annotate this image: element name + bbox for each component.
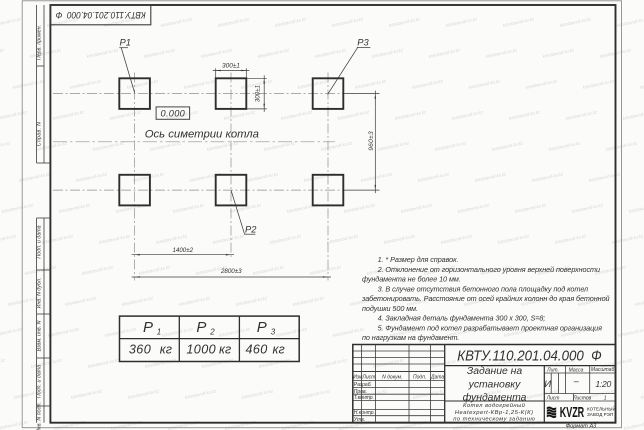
- svg-text:360: 360: [129, 342, 151, 356]
- svg-text:Пров.: Пров.: [354, 389, 367, 395]
- svg-text:Справ. N: Справ. N: [37, 122, 43, 147]
- svg-text:Дата: Дата: [430, 375, 444, 381]
- svg-text:P: P: [143, 319, 153, 336]
- svg-text:Масса: Масса: [569, 367, 584, 373]
- svg-text:Т.контр.: Т.контр.: [354, 395, 374, 401]
- svg-text:1. * Размер для справок.: 1. * Размер для справок.: [378, 255, 459, 264]
- svg-text:Инв. N подл.: Инв. N подл.: [37, 402, 43, 430]
- svg-text:Heatexpert-КВр-1,25-К(К): Heatexpert-КВр-1,25-К(К): [455, 410, 534, 416]
- svg-text:фундамента не более 10 мм.: фундамента не более 10 мм.: [362, 275, 461, 284]
- svg-text:5. Фундамент под котел разраба: 5. Фундамент под котел разрабатывает про…: [378, 323, 603, 332]
- svg-text:Котел водогрейный: Котел водогрейный: [463, 402, 526, 409]
- svg-text:P: P: [257, 319, 267, 336]
- svg-text:1:20: 1:20: [595, 379, 611, 389]
- svg-text:Перв. примен.: Перв. примен.: [37, 25, 43, 60]
- svg-text:Ось симетрии котла: Ось симетрии котла: [145, 128, 259, 140]
- svg-text:1000: 1000: [186, 342, 216, 356]
- svg-text:460: 460: [246, 342, 268, 356]
- svg-text:КВТУ.110.201.04.000 Ф: КВТУ.110.201.04.000 Ф: [56, 10, 146, 20]
- svg-text:N докум.: N докум.: [382, 375, 402, 381]
- svg-text:1: 1: [157, 328, 161, 337]
- svg-text:Утв.: Утв.: [354, 417, 365, 423]
- svg-text:0.000: 0.000: [161, 109, 186, 119]
- svg-text:Подп.: Подп.: [413, 375, 426, 381]
- svg-text:Лист: Лист: [361, 375, 375, 381]
- svg-text:300±1: 300±1: [255, 85, 262, 102]
- svg-text:3. В случае отсутствия бетонно: 3. В случае отсутствия бетонного пола пл…: [378, 284, 588, 293]
- svg-text:по техническому заданию: по техническому заданию: [453, 417, 535, 423]
- svg-text:Разраб.: Разраб.: [354, 382, 372, 388]
- svg-text:300±1: 300±1: [222, 63, 240, 70]
- svg-text:Лист: Лист: [546, 395, 560, 401]
- svg-text:Инв. N дубл.: Инв. N дубл.: [37, 278, 43, 309]
- svg-text:кг: кг: [160, 342, 172, 356]
- svg-text:Н.контр.: Н.контр.: [354, 410, 375, 416]
- svg-text:Взам. инв. N: Взам. инв. N: [37, 320, 43, 351]
- svg-text:кг: кг: [273, 342, 285, 356]
- svg-text:Подп. и дата: Подп. и дата: [37, 365, 43, 398]
- svg-text:960±3: 960±3: [368, 131, 375, 151]
- svg-text:установку: установку: [468, 380, 522, 391]
- svg-text:Масштаб: Масштаб: [591, 367, 615, 373]
- svg-text:КОТЕЛЬНЫЙ: КОТЕЛЬНЫЙ: [587, 405, 616, 412]
- svg-text:1: 1: [604, 395, 607, 401]
- svg-text:P3: P3: [357, 37, 369, 47]
- svg-text:2800±3: 2800±3: [220, 268, 242, 275]
- svg-text:Подп. и дата: Подп. и дата: [37, 225, 43, 258]
- svg-text:забетонировать. Расстояние от: забетонировать. Расстояние от осей крайн…: [361, 294, 610, 303]
- svg-text:КВТУ.110.201.04.000 Ф: КВТУ.110.201.04.000 Ф: [457, 347, 602, 364]
- svg-text:2: 2: [209, 328, 215, 337]
- svg-text:кг: кг: [219, 342, 231, 356]
- svg-text:И: И: [544, 379, 551, 390]
- svg-text:Лит.: Лит.: [546, 367, 559, 373]
- svg-text:P: P: [196, 319, 206, 336]
- svg-text:подушки 500 мм.: подушки 500 мм.: [362, 304, 418, 313]
- svg-text:4. Закладная деталь фундамента: 4. Закладная деталь фундамента 300 x 300…: [378, 314, 546, 323]
- svg-text:3: 3: [271, 328, 276, 337]
- svg-text:P1: P1: [120, 38, 131, 48]
- svg-text:1400±2: 1400±2: [172, 247, 193, 254]
- svg-text:по нагрузкам на фундамент.: по нагрузкам на фундамент.: [362, 333, 459, 342]
- svg-text:Формат А3: Формат А3: [566, 423, 597, 429]
- svg-text:ЗАВОД РЭП: ЗАВОД РЭП: [587, 412, 613, 417]
- svg-text:KVZR: KVZR: [560, 405, 585, 421]
- svg-text:Листов: Листов: [572, 395, 592, 401]
- svg-text:2. Отклонение от горизонтально: 2. Отклонение от горизонтального уровня …: [377, 265, 600, 274]
- svg-text:P2: P2: [245, 225, 257, 235]
- svg-text:Задание на: Задание на: [467, 366, 523, 377]
- svg-text:–: –: [573, 376, 580, 386]
